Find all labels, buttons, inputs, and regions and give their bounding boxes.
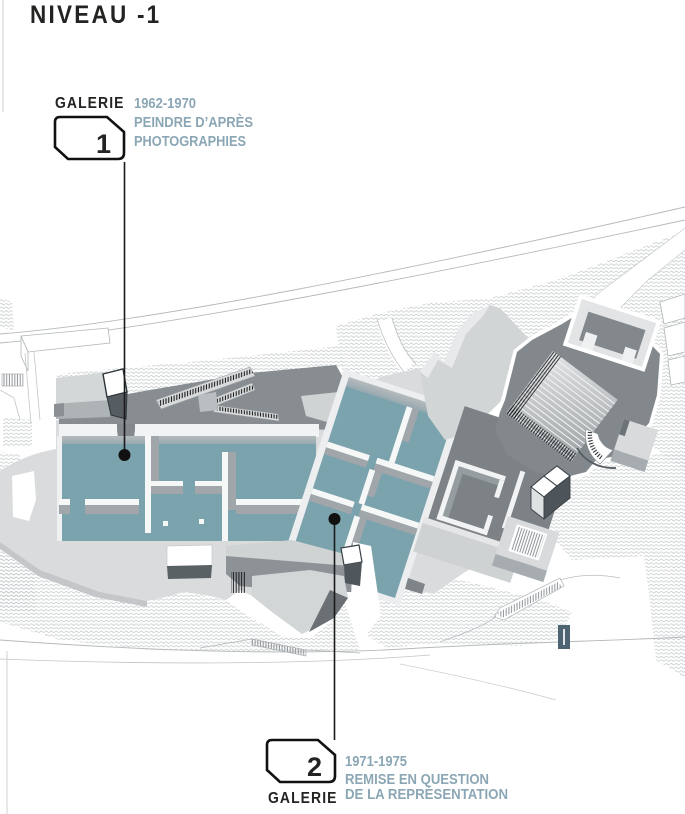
svg-text:PHOTOGRAPHIES: PHOTOGRAPHIES	[134, 134, 246, 150]
svg-text:1971-1975: 1971-1975	[345, 754, 407, 770]
svg-text:GALERIE: GALERIE	[268, 790, 338, 807]
svg-text:REMISE EN QUESTION: REMISE EN QUESTION	[345, 772, 489, 788]
svg-text:GALERIE: GALERIE	[55, 95, 125, 112]
svg-text:PEINDRE D’APRÈS: PEINDRE D’APRÈS	[134, 114, 253, 131]
svg-text:DE LA REPRÉSENTATION: DE LA REPRÉSENTATION	[345, 786, 508, 803]
svg-text:2: 2	[307, 752, 322, 782]
svg-text:1962-1970: 1962-1970	[134, 96, 196, 112]
svg-text:1: 1	[96, 129, 111, 159]
svg-text:NIVEAU -1: NIVEAU -1	[30, 1, 161, 29]
